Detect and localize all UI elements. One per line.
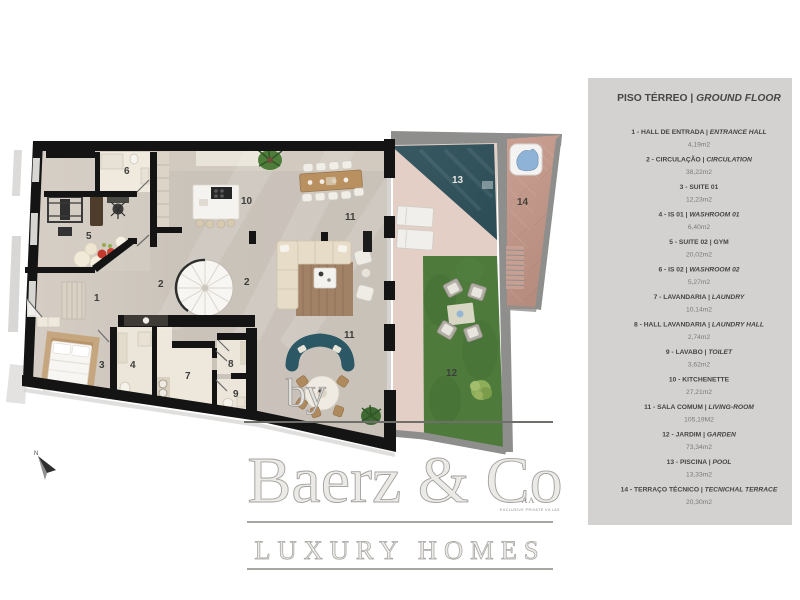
svg-text:3: 3 <box>99 360 105 371</box>
svg-text:Baerz & Co: Baerz & Co <box>247 444 562 517</box>
svg-text:EXCLUSIVE PRIVATE VILLAS: EXCLUSIVE PRIVATE VILLAS <box>500 508 560 512</box>
svg-text:5 - SUITE 02 | GYM: 5 - SUITE 02 | GYM <box>669 239 729 246</box>
svg-text:9 - LAVABO | TOILET: 9 - LAVABO | TOILET <box>666 349 733 356</box>
svg-text:38,22m2: 38,22m2 <box>686 169 712 176</box>
svg-text:11 - SALA COMUM | LIVING-ROOM: 11 - SALA COMUM | LIVING-ROOM <box>644 404 754 411</box>
svg-text:20,30m2: 20,30m2 <box>686 499 712 506</box>
svg-text:3 - SUITE 01: 3 - SUITE 01 <box>680 184 719 191</box>
svg-text:2,74m2: 2,74m2 <box>688 334 711 341</box>
svg-text:11: 11 <box>344 330 355 341</box>
svg-text:LUXURY HOMES: LUXURY HOMES <box>254 535 545 565</box>
svg-text:1: 1 <box>94 293 100 304</box>
svg-text:13,33m2: 13,33m2 <box>686 472 712 479</box>
svg-text:N: N <box>34 451 38 457</box>
svg-text:10 - KITCHENETTE: 10 - KITCHENETTE <box>669 377 730 384</box>
svg-text:20,02m2: 20,02m2 <box>686 252 712 259</box>
svg-text:13 - PISCINA | POOL: 13 - PISCINA | POOL <box>667 459 732 466</box>
svg-text:12 - JARDIM | GARDEN: 12 - JARDIM | GARDEN <box>662 432 736 439</box>
svg-text:12: 12 <box>446 368 458 379</box>
svg-text:by: by <box>286 370 326 415</box>
svg-text:6: 6 <box>124 166 130 177</box>
svg-text:14 - TERRAÇO TÉCNICO | TECNICH: 14 - TERRAÇO TÉCNICO | TECNICHAL TERRACE <box>621 485 778 494</box>
svg-text:A A: A A <box>522 496 535 505</box>
svg-text:2: 2 <box>158 279 164 290</box>
svg-text:4: 4 <box>130 360 136 371</box>
svg-text:4 - IS 01 | WASHROOM 01: 4 - IS 01 | WASHROOM 01 <box>658 212 739 219</box>
svg-text:8 - HALL LAVANDARIA | LAUNDRY: 8 - HALL LAVANDARIA | LAUNDRY HALL <box>634 322 764 329</box>
svg-text:27,21m2: 27,21m2 <box>686 389 712 396</box>
svg-text:7: 7 <box>185 371 191 382</box>
svg-text:4,19m2: 4,19m2 <box>688 142 711 149</box>
svg-text:3,62m2: 3,62m2 <box>688 362 711 369</box>
svg-text:2: 2 <box>244 277 250 288</box>
svg-text:8: 8 <box>228 359 234 370</box>
svg-text:PISO TÉRREO | GROUND FLOOR: PISO TÉRREO | GROUND FLOOR <box>617 91 781 104</box>
svg-text:11: 11 <box>345 212 356 223</box>
svg-text:6,40m2: 6,40m2 <box>688 224 711 231</box>
svg-text:1 - HALL DE ENTRADA | ENTRANCE: 1 - HALL DE ENTRADA | ENTRANCE HALL <box>631 129 766 136</box>
svg-text:12,23m2: 12,23m2 <box>686 197 712 204</box>
svg-text:14: 14 <box>517 197 529 208</box>
svg-text:10,14m2: 10,14m2 <box>686 307 712 314</box>
svg-text:10: 10 <box>241 196 253 207</box>
svg-text:7 - LAVANDARIA | LAUNDRY: 7 - LAVANDARIA | LAUNDRY <box>654 294 745 301</box>
svg-text:5,27m2: 5,27m2 <box>688 279 711 286</box>
svg-text:9: 9 <box>233 389 239 400</box>
svg-text:2 - CIRCULAÇÃO | CIRCULATION: 2 - CIRCULAÇÃO | CIRCULATION <box>646 155 752 164</box>
svg-text:5: 5 <box>86 231 92 242</box>
svg-text:6 - IS 02 | WASHROOM 02: 6 - IS 02 | WASHROOM 02 <box>658 267 739 274</box>
svg-text:13: 13 <box>452 175 464 186</box>
svg-text:105,19M2: 105,19M2 <box>684 417 714 424</box>
svg-text:73,34m2: 73,34m2 <box>686 444 712 451</box>
